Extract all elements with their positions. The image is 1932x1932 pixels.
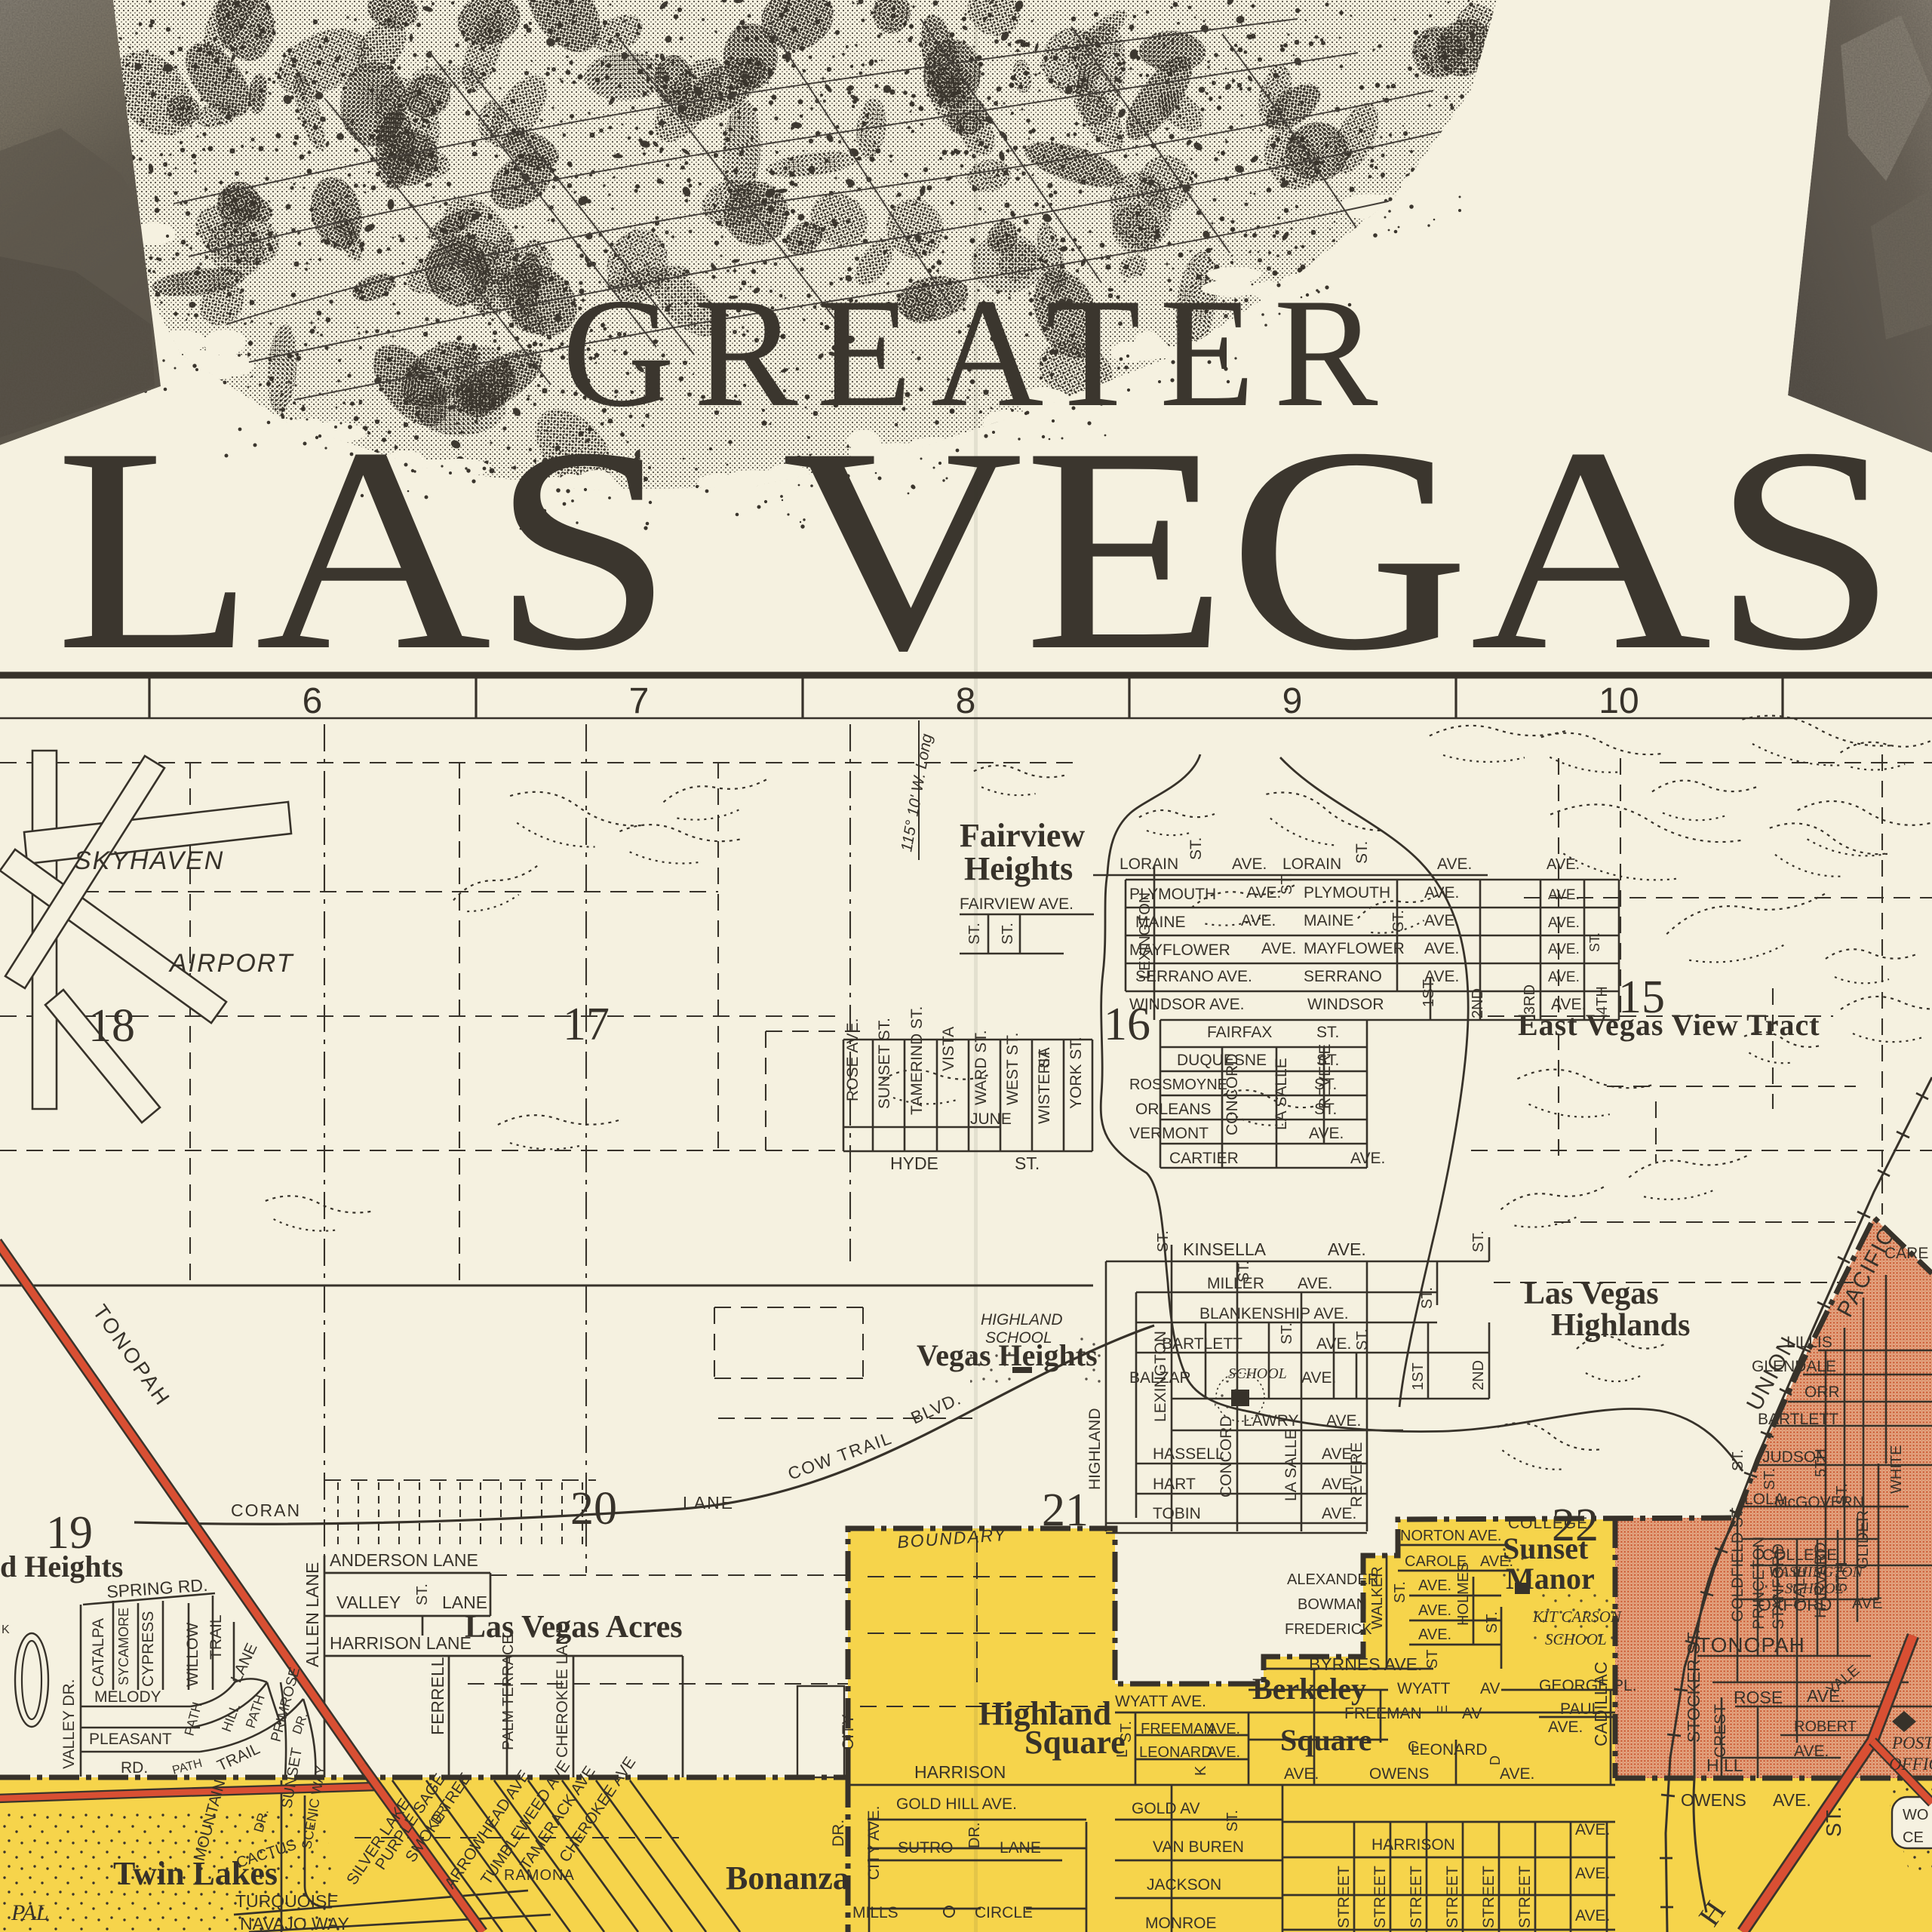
svg-text:AVE.: AVE. (1301, 1369, 1336, 1387)
svg-text:GOLDFIELD ST.: GOLDFIELD ST. (1729, 1505, 1746, 1622)
svg-text:AVE.: AVE. (1246, 884, 1281, 901)
svg-text:MILLS: MILLS (852, 1904, 898, 1921)
svg-text:AVE.: AVE. (1548, 915, 1580, 931)
svg-text:17: 17 (563, 999, 610, 1050)
svg-text:PALM TERRACE: PALM TERRACE (500, 1634, 517, 1750)
svg-text:HOLMES: HOLMES (1455, 1562, 1472, 1626)
svg-text:WHITE: WHITE (1888, 1445, 1905, 1494)
svg-text:Highlands: Highlands (1551, 1308, 1690, 1343)
svg-text:VEGAS: VEGAS (782, 387, 1898, 711)
svg-text:AVE.: AVE. (1418, 1626, 1451, 1643)
svg-text:ROSE AVE.: ROSE AVE. (844, 1018, 862, 1102)
svg-text:CORAN: CORAN (231, 1500, 301, 1520)
svg-text:8: 8 (956, 681, 976, 721)
svg-text:d Heights: d Heights (0, 1550, 123, 1583)
svg-text:MAYFLOWER: MAYFLOWER (1304, 940, 1405, 957)
svg-text:G: G (1408, 1739, 1420, 1755)
svg-text:STOCKER ST.: STOCKER ST. (1684, 1629, 1703, 1743)
svg-text:CARTIER: CARTIER (1169, 1150, 1239, 1167)
svg-text:GLIDER: GLIDER (1854, 1510, 1872, 1569)
svg-text:BARTLETT: BARTLETT (1758, 1411, 1838, 1428)
svg-text:CITY: CITY (840, 1714, 857, 1750)
svg-text:CONCORD: CONCORD (1224, 1054, 1241, 1136)
svg-text:ST: ST (1424, 1649, 1441, 1669)
svg-text:PAL: PAL (11, 1900, 48, 1925)
svg-text:HARVARD: HARVARD (1812, 1542, 1829, 1618)
svg-text:HASSELL: HASSELL (1153, 1445, 1224, 1463)
svg-text:ST.: ST. (1762, 1468, 1778, 1490)
svg-text:Las Vegas: Las Vegas (1524, 1276, 1659, 1311)
svg-text:ST.: ST. (1419, 1287, 1436, 1309)
svg-text:AVE.: AVE. (1424, 940, 1459, 957)
svg-text:STREET: STREET (1371, 1866, 1389, 1928)
svg-text:LEXINGTON: LEXINGTON (1152, 1331, 1169, 1422)
svg-text:ALLEN LANE: ALLEN LANE (303, 1562, 322, 1667)
svg-text:ST.: ST. (1224, 1810, 1241, 1832)
svg-text:AVE.: AVE. (1316, 1335, 1351, 1353)
svg-text:Berkeley: Berkeley (1252, 1672, 1366, 1706)
svg-text:RAMONA: RAMONA (504, 1867, 575, 1884)
svg-text:CONCORD: CONCORD (1218, 1416, 1235, 1498)
svg-text:COLLEGE: COLLEGE (1508, 1515, 1588, 1532)
svg-text:TOBIN: TOBIN (1153, 1505, 1201, 1522)
svg-text:SUNSET ST.: SUNSET ST. (876, 1018, 893, 1109)
svg-text:PLEASANT: PLEASANT (89, 1731, 172, 1748)
svg-text:AVE.: AVE. (1232, 855, 1267, 873)
svg-text:SERRANO: SERRANO (1304, 968, 1382, 985)
svg-text:WO: WO (1903, 1807, 1928, 1823)
svg-text:SCHOOL: SCHOOL (1228, 1365, 1287, 1382)
svg-text:WEST ST.: WEST ST. (1004, 1033, 1021, 1105)
svg-text:ROSSMOYNE: ROSSMOYNE (1129, 1077, 1227, 1093)
svg-text:AVE.: AVE. (1241, 912, 1276, 929)
svg-text:AVE.: AVE. (1418, 1577, 1451, 1594)
svg-text:AVE.: AVE. (1350, 1150, 1385, 1167)
svg-text:Fairview: Fairview (960, 817, 1085, 854)
svg-text:MAINE: MAINE (1304, 912, 1354, 929)
svg-text:AVE.: AVE. (1424, 912, 1459, 929)
svg-text:Las Vegas Acres: Las Vegas Acres (465, 1610, 683, 1645)
svg-text:HART: HART (1153, 1476, 1196, 1493)
svg-text:WYATT AVE.: WYATT AVE. (1115, 1693, 1206, 1710)
svg-text:BLANKENSHIP AVE.: BLANKENSHIP AVE. (1199, 1305, 1349, 1322)
svg-text:PLYMOUTH: PLYMOUTH (1304, 884, 1390, 901)
svg-text:ST.: ST. (1392, 1581, 1408, 1603)
svg-text:AVE.: AVE. (1284, 1765, 1319, 1783)
svg-text:FREEMAN: FREEMAN (1344, 1705, 1422, 1722)
svg-text:KINSELLA: KINSELLA (1183, 1239, 1267, 1259)
svg-text:FAIRFAX: FAIRFAX (1207, 1024, 1272, 1041)
svg-text:AVE.: AVE. (1547, 856, 1580, 873)
svg-text:HIGHLAND: HIGHLAND (981, 1311, 1063, 1328)
svg-text:LAS: LAS (55, 387, 674, 711)
svg-text:ST.: ST. (1118, 1721, 1135, 1743)
svg-text:CITY AVE.: CITY AVE. (865, 1806, 883, 1880)
svg-text:AVE.: AVE. (1794, 1743, 1829, 1760)
svg-text:ST.: ST. (1730, 1449, 1746, 1471)
svg-text:D: D (1488, 1755, 1503, 1765)
svg-text:VAN BUREN: VAN BUREN (1153, 1838, 1244, 1856)
svg-text:HARRISON: HARRISON (1371, 1836, 1455, 1854)
svg-text:ST.: ST. (1316, 1024, 1339, 1041)
svg-text:REVERE: REVERE (1348, 1442, 1365, 1507)
svg-text:ST.: ST. (1000, 923, 1016, 944)
svg-text:MELODY: MELODY (94, 1688, 161, 1706)
svg-text:ST.: ST. (414, 1583, 431, 1605)
svg-text:AVE.: AVE. (1500, 1765, 1534, 1783)
svg-text:CATALPA: CATALPA (90, 1618, 107, 1687)
svg-text:ST.: ST. (1587, 932, 1602, 952)
svg-text:HARRISON: HARRISON (914, 1762, 1006, 1782)
svg-text:18: 18 (88, 1000, 135, 1052)
svg-text:VISTA: VISTA (940, 1027, 957, 1071)
svg-text:2ND: 2ND (1470, 988, 1486, 1018)
svg-text:AVE.: AVE. (1418, 1602, 1451, 1619)
svg-text:STREET: STREET (1444, 1866, 1461, 1928)
svg-text:GEORGE PL.: GEORGE PL. (1539, 1677, 1637, 1694)
svg-text:BARTLETT: BARTLETT (1162, 1335, 1242, 1353)
svg-text:STREET: STREET (1516, 1866, 1534, 1928)
svg-text:ST.: ST. (1390, 910, 1407, 932)
svg-text:ST.: ST. (1834, 1483, 1851, 1505)
svg-text:VALLEY DR.: VALLEY DR. (60, 1679, 78, 1769)
svg-text:L: L (1114, 1749, 1131, 1758)
svg-text:FREDERICK: FREDERICK (1285, 1621, 1372, 1638)
svg-text:GOLD HILL AVE.: GOLD HILL AVE. (896, 1795, 1017, 1813)
svg-text:LA SALLE: LA SALLE (1273, 1058, 1290, 1130)
svg-text:AVE.: AVE. (1548, 941, 1580, 957)
svg-text:AVE.: AVE. (1548, 887, 1580, 903)
svg-text:ST.: ST. (1822, 1807, 1845, 1837)
svg-text:AIRPORT: AIRPORT (168, 949, 294, 978)
svg-text:ST.: ST. (1353, 841, 1371, 864)
svg-text:AVE.: AVE. (1207, 1744, 1240, 1761)
svg-text:2ND: 2ND (1470, 1360, 1487, 1390)
svg-text:AVE.: AVE. (1575, 1865, 1610, 1882)
svg-text:PRINCETON: PRINCETON (1750, 1537, 1768, 1629)
svg-text:CHEROKEE LANE: CHEROKEE LANE (554, 1623, 571, 1758)
svg-text:ST.: ST. (1155, 1230, 1172, 1252)
svg-text:ROBERT: ROBERT (1794, 1719, 1857, 1735)
svg-text:LEXINGTON: LEXINGTON (1137, 892, 1153, 979)
svg-text:DUQUESNE: DUQUESNE (1177, 1052, 1267, 1069)
svg-text:VERMONT: VERMONT (1129, 1125, 1209, 1142)
svg-text:CYPRESS: CYPRESS (140, 1611, 157, 1687)
svg-text:AVE.: AVE. (1207, 1721, 1240, 1737)
svg-text:REVERE: REVERE (1316, 1044, 1334, 1109)
svg-text:SCHOOL: SCHOOL (985, 1329, 1052, 1347)
svg-text:OWENS: OWENS (1369, 1765, 1429, 1783)
svg-text:10: 10 (1599, 681, 1639, 721)
svg-text:OWENS: OWENS (1681, 1790, 1746, 1810)
svg-text:TRAIL: TRAIL (207, 1614, 225, 1660)
svg-text:ORLEANS: ORLEANS (1135, 1101, 1211, 1118)
svg-text:HARRISON LANE: HARRISON LANE (330, 1633, 471, 1653)
svg-text:STREET: STREET (1335, 1866, 1353, 1928)
svg-text:6: 6 (303, 681, 323, 721)
svg-text:ST.: ST. (1354, 1328, 1371, 1350)
svg-text:NAVAJO WAY: NAVAJO WAY (240, 1914, 349, 1932)
svg-text:AVE.: AVE. (1575, 1907, 1610, 1924)
svg-text:AVE.: AVE. (1437, 855, 1472, 873)
svg-text:20: 20 (570, 1483, 617, 1534)
svg-text:CADILLAC: CADILLAC (1591, 1662, 1611, 1746)
svg-text:AVE.: AVE. (1575, 1821, 1610, 1838)
svg-text:GOLD AV: GOLD AV (1132, 1800, 1200, 1817)
svg-text:Twin Lakes: Twin Lakes (113, 1855, 278, 1892)
svg-text:LANE: LANE (683, 1493, 734, 1513)
svg-text:ST.: ST. (1015, 1153, 1040, 1173)
svg-text:E: E (1435, 1705, 1450, 1714)
svg-text:1ST: 1ST (1421, 979, 1437, 1007)
svg-text:ST.: ST. (1279, 1322, 1295, 1344)
svg-text:ST.: ST. (1187, 837, 1205, 860)
svg-text:LANE: LANE (1000, 1839, 1041, 1857)
svg-text:YORK ST.: YORK ST. (1067, 1037, 1085, 1109)
svg-text:HIGHLAND: HIGHLAND (1086, 1408, 1104, 1490)
svg-text:AVE.: AVE. (1548, 969, 1580, 985)
svg-text:AVE: AVE (1852, 1595, 1882, 1612)
svg-text:SKYHAVEN: SKYHAVEN (74, 846, 224, 875)
svg-text:OFFICE: OFFICE (1889, 1755, 1932, 1774)
svg-text:TURQUOISE: TURQUOISE (235, 1891, 339, 1911)
svg-text:McGOVERN: McGOVERN (1774, 1494, 1864, 1511)
svg-text:AVE.: AVE. (1309, 1125, 1344, 1142)
svg-text:ST.: ST. (1470, 1230, 1487, 1252)
svg-text:Square: Square (1024, 1724, 1126, 1761)
svg-text:FERRELL: FERRELL (428, 1657, 447, 1735)
svg-text:21: 21 (1042, 1485, 1089, 1536)
svg-text:5TH: 5TH (1813, 1448, 1829, 1477)
svg-text:5TH: 5TH (1833, 1562, 1851, 1592)
svg-text:East Vegas View Tract: East Vegas View Tract (1518, 1008, 1820, 1042)
svg-text:AVE.: AVE. (1261, 940, 1296, 957)
svg-text:ST.: ST. (1037, 1046, 1053, 1068)
svg-text:CE: CE (1903, 1829, 1924, 1846)
svg-text:LAWRY: LAWRY (1243, 1412, 1299, 1430)
svg-text:AV: AV (1462, 1705, 1482, 1722)
svg-text:FREEMAN: FREEMAN (1141, 1721, 1215, 1737)
svg-text:AVE.: AVE. (1424, 884, 1459, 901)
svg-text:BOWMAN: BOWMAN (1298, 1596, 1367, 1613)
svg-text:CREST: CREST (1712, 1704, 1729, 1758)
svg-text:K: K (2, 1623, 10, 1636)
svg-text:ST.: ST. (1279, 873, 1295, 895)
svg-text:LA SALLE: LA SALLE (1282, 1429, 1300, 1501)
svg-text:LEONARD: LEONARD (1139, 1744, 1212, 1761)
svg-text:ALEXANDER: ALEXANDER (1287, 1571, 1378, 1588)
svg-text:AVE.: AVE. (1298, 1275, 1332, 1292)
svg-text:VALLEY: VALLEY (336, 1593, 401, 1612)
svg-text:POST: POST (1891, 1734, 1932, 1752)
svg-text:Heights: Heights (964, 850, 1073, 887)
svg-text:LEONARD: LEONARD (1411, 1741, 1488, 1758)
svg-text:K: K (1193, 1765, 1209, 1776)
svg-text:RD.: RD. (121, 1759, 148, 1777)
svg-text:STREET: STREET (1408, 1866, 1425, 1928)
svg-text:CIRCLE: CIRCLE (975, 1904, 1033, 1921)
svg-text:9: 9 (1282, 681, 1303, 721)
svg-text:Bonanza: Bonanza (726, 1860, 849, 1897)
svg-text:MONROE: MONROE (1145, 1915, 1217, 1932)
svg-text:BYRNES AVE.: BYRNES AVE. (1309, 1654, 1422, 1674)
svg-text:ST.: ST. (1236, 1261, 1252, 1282)
svg-text:WILLOW: WILLOW (184, 1623, 201, 1687)
svg-text:1ST: 1ST (1410, 1362, 1427, 1390)
svg-text:SYCAMORE: SYCAMORE (116, 1608, 131, 1685)
svg-text:7: 7 (629, 681, 650, 721)
svg-text:TAMERIND ST.: TAMERIND ST. (908, 1006, 926, 1115)
svg-text:JACKSON: JACKSON (1147, 1876, 1221, 1894)
svg-text:AVE.: AVE. (1773, 1790, 1811, 1810)
svg-text:HILL: HILL (1706, 1755, 1743, 1775)
svg-text:TONOPAH: TONOPAH (1697, 1633, 1805, 1657)
svg-text:LOLA: LOLA (1744, 1491, 1785, 1508)
svg-text:ANDERSON LANE: ANDERSON LANE (330, 1550, 478, 1570)
svg-text:ST.: ST. (1484, 1611, 1500, 1633)
svg-text:ORR: ORR (1805, 1384, 1840, 1401)
svg-text:WYATT: WYATT (1397, 1680, 1451, 1697)
svg-text:HYDE: HYDE (890, 1153, 938, 1173)
svg-text:WINDSOR: WINDSOR (1307, 996, 1384, 1013)
svg-text:DR.: DR. (830, 1820, 847, 1847)
svg-text:Square: Square (1280, 1723, 1372, 1757)
svg-text:ROSE: ROSE (1734, 1688, 1783, 1707)
svg-text:WINDSOR AVE.: WINDSOR AVE. (1129, 996, 1244, 1013)
svg-text:LORAIN: LORAIN (1120, 855, 1178, 873)
svg-text:AVE.: AVE. (1326, 1412, 1361, 1430)
svg-text:AVE.: AVE. (1548, 1719, 1583, 1736)
svg-text:AVE.: AVE. (1328, 1239, 1366, 1259)
svg-text:SUTRO: SUTRO (898, 1839, 954, 1857)
svg-text:LORAIN: LORAIN (1282, 855, 1341, 873)
svg-text:STREET: STREET (1480, 1866, 1497, 1928)
svg-text:AV: AV (1480, 1680, 1500, 1697)
svg-text:NORTON AVE.: NORTON AVE. (1400, 1528, 1501, 1544)
